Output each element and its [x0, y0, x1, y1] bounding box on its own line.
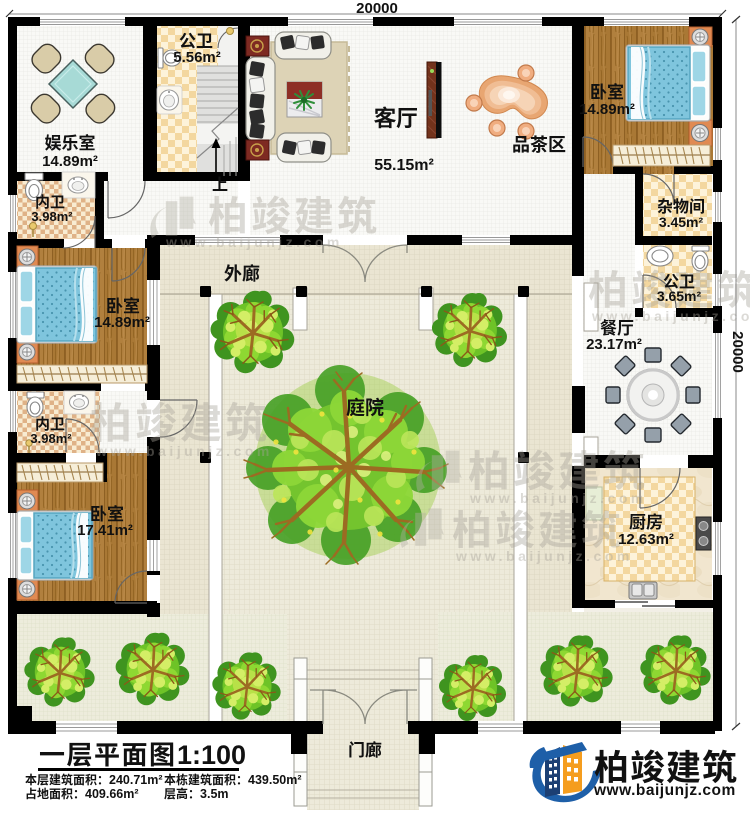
svg-text:外廊: 外廊	[224, 260, 260, 286]
svg-text:层高：3.5m: 层高：3.5m	[164, 785, 229, 802]
svg-text:3.45m²: 3.45m²	[659, 214, 704, 230]
svg-text:品茶区: 品茶区	[512, 131, 566, 157]
svg-text:一层平面图: 一层平面图	[39, 735, 177, 772]
svg-text:www.baijunjz.com: www.baijunjz.com	[165, 232, 343, 252]
svg-text:23.17m²: 23.17m²	[586, 336, 642, 353]
svg-text:14.89m²: 14.89m²	[42, 153, 98, 170]
svg-text:www.baijunjz.com: www.baijunjz.com	[593, 782, 736, 799]
svg-text:17.41m²: 17.41m²	[77, 522, 133, 539]
svg-text:庭院: 庭院	[346, 393, 384, 420]
svg-text:门廊: 门廊	[348, 736, 382, 761]
svg-text:14.89m²: 14.89m²	[94, 314, 150, 331]
svg-text:20000: 20000	[729, 331, 746, 373]
svg-text:www.baijunjz.com: www.baijunjz.com	[455, 546, 633, 566]
svg-text:3.98m²: 3.98m²	[30, 431, 72, 446]
svg-text:客厅: 客厅	[374, 101, 418, 133]
svg-text:卧室: 卧室	[590, 78, 624, 103]
svg-text:5.56m²: 5.56m²	[173, 49, 221, 66]
svg-text:20000: 20000	[356, 0, 398, 17]
svg-text:娱乐室: 娱乐室	[45, 129, 96, 154]
svg-text:55.15m²: 55.15m²	[374, 157, 434, 174]
svg-text:1:100: 1:100	[177, 740, 246, 770]
svg-text:占地面积：409.66m²: 占地面积：409.66m²	[25, 785, 139, 802]
svg-text:www.baijunjz.com: www.baijunjz.com	[95, 441, 273, 461]
svg-text:12.63m²: 12.63m²	[618, 531, 674, 548]
svg-text:3.65m²: 3.65m²	[657, 288, 702, 304]
svg-text:14.89m²: 14.89m²	[579, 101, 635, 118]
svg-text:3.98m²: 3.98m²	[31, 209, 73, 224]
svg-text:厨房: 厨房	[629, 508, 663, 533]
